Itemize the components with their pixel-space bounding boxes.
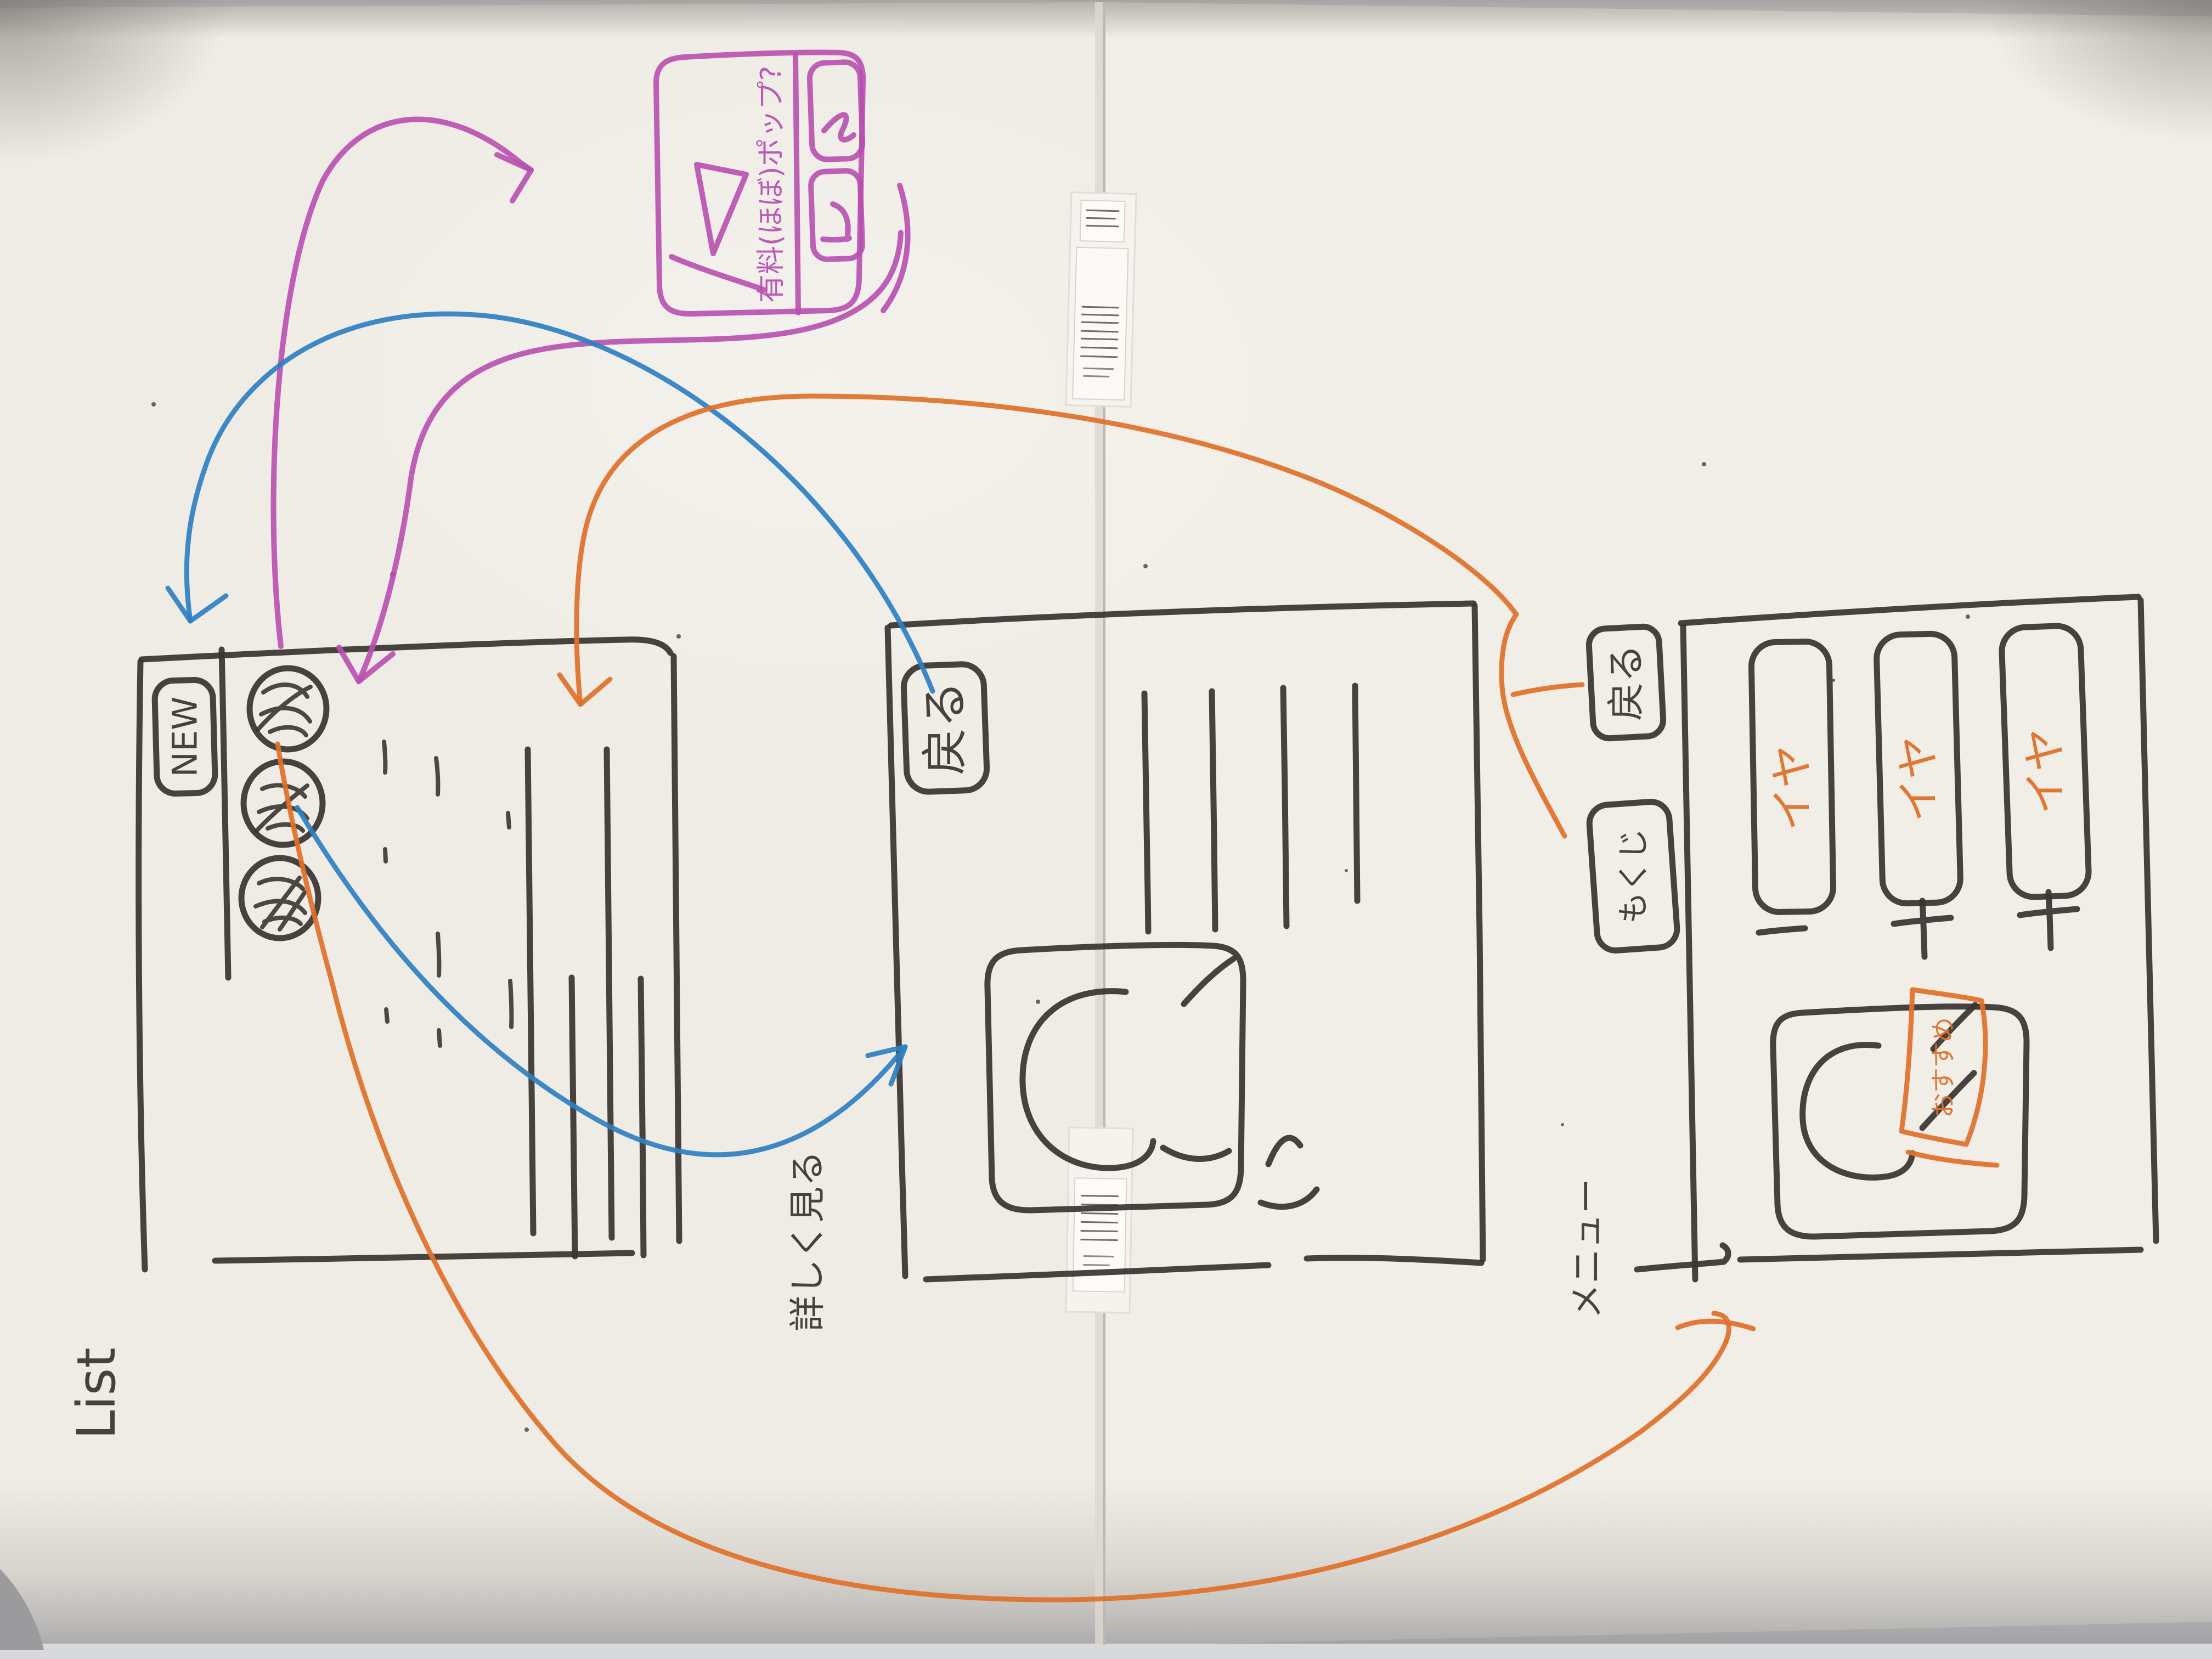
- bottom-shadow: [0, 1481, 2212, 1646]
- light-reflection: [219, 0, 1426, 768]
- list-screen-title: List: [66, 1347, 127, 1440]
- modal-divider: [795, 55, 798, 313]
- back-button-label: 戻る: [918, 681, 973, 775]
- tape-top: [1066, 193, 1136, 407]
- card-label: イヤ: [1893, 736, 1944, 822]
- featured-tag-label: おすすめ: [1928, 1017, 1958, 1118]
- card-label: イヤ: [2020, 728, 2071, 815]
- tape-center: [1066, 1127, 1133, 1313]
- corner-shadow-tl: [0, 0, 230, 165]
- top-shadow: [0, 0, 2212, 38]
- corner-shadow-tr: [1982, 0, 2212, 143]
- floor-strip: [0, 1644, 2212, 1659]
- menu-screen-title: メニュー: [1567, 1178, 1608, 1319]
- card-label: イヤ: [1767, 744, 1818, 831]
- detail-screen-title: 詳しく見る: [787, 1150, 829, 1331]
- back-button-label: 戻る: [1604, 644, 1649, 721]
- toc-button-label: もくじ: [1615, 828, 1652, 924]
- modal-message: 有料(ほぼ)ポップ?: [755, 66, 788, 303]
- new-button-label: NEW: [165, 697, 205, 777]
- whiteboard-photo: NEW List: [0, 0, 2212, 1659]
- barcode-sticker: [1080, 200, 1125, 242]
